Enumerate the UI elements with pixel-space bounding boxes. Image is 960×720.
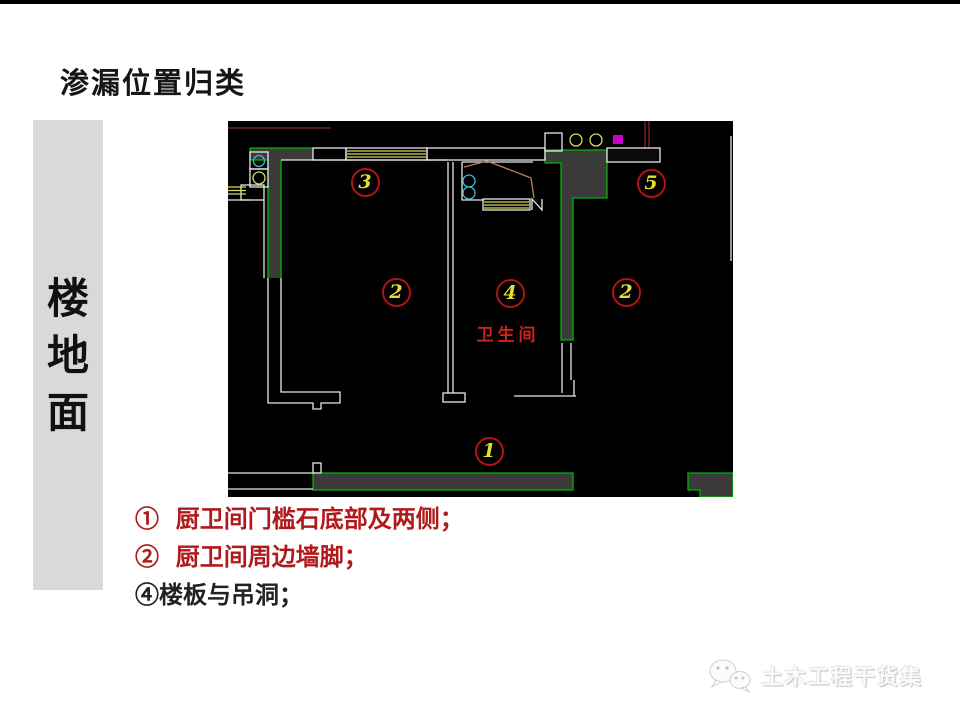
leak-marker-2: 2: [382, 278, 411, 307]
leak-annotation-4: ④楼板与吊洞；: [135, 576, 464, 614]
sidebar-char-3: 面: [47, 384, 89, 441]
leak-marker-1: 1: [475, 437, 504, 466]
floor-plan: 352421卫生间: [228, 121, 733, 497]
brand-watermark: 土木工程干货集: [708, 658, 923, 694]
wechat-icon: [708, 658, 754, 694]
leak-marker-2: 2: [612, 278, 641, 307]
leak-marker-5: 5: [637, 169, 666, 198]
annotation-list: ① 厨卫间门槛石底部及两侧； ② 厨卫间周边墙脚； ④楼板与吊洞；: [135, 500, 464, 614]
leak-annotation-2: ② 厨卫间周边墙脚；: [135, 538, 464, 576]
leak-marker-4: 4: [496, 279, 525, 308]
sidebar-char-2: 地: [47, 327, 89, 384]
section-sidebar: 楼 地 面: [33, 120, 103, 590]
room-label: 卫生间: [477, 321, 540, 346]
leak-marker-3: 3: [351, 168, 380, 197]
page-title: 渗漏位置归类: [60, 60, 246, 102]
slide: 渗漏位置归类 楼 地 面: [0, 0, 960, 720]
watermark-text: 土木工程干货集: [762, 661, 923, 691]
top-border: [0, 0, 960, 4]
sidebar-char-1: 楼: [47, 270, 89, 327]
leak-annotation-1: ① 厨卫间门槛石底部及两侧；: [135, 500, 464, 538]
